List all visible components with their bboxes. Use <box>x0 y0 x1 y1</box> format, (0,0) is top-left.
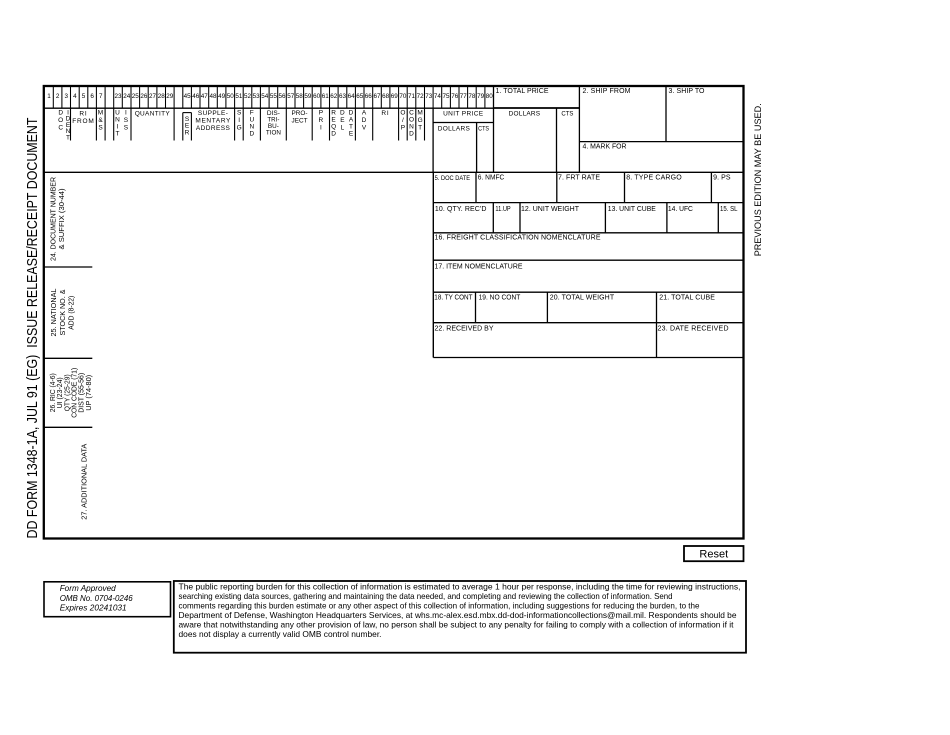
svg-text:T: T <box>418 125 422 132</box>
svg-text:2. SHIP FROM: 2. SHIP FROM <box>583 88 631 95</box>
svg-text:21. TOTAL CUBE: 21. TOTAL CUBE <box>659 294 715 301</box>
svg-text:I: I <box>238 117 240 124</box>
svg-text:61: 61 <box>322 93 330 100</box>
svg-text:CTS: CTS <box>561 111 574 118</box>
svg-text:71: 71 <box>408 93 416 100</box>
svg-text:53: 53 <box>253 93 261 100</box>
svg-text:The public reporting burden fo: The public reporting burden for this col… <box>179 582 741 591</box>
svg-text:2: 2 <box>56 93 60 100</box>
svg-text:25. NATIONAL: 25. NATIONAL <box>49 289 58 337</box>
svg-text:T: T <box>349 124 353 131</box>
svg-text:P: P <box>401 125 405 132</box>
svg-text:16. FREIGHT CLASSIFICATION NOM: 16. FREIGHT CLASSIFICATION NOMENCLATURE <box>435 235 601 242</box>
svg-text:49: 49 <box>218 93 226 100</box>
svg-text:12. UNIT WEIGHT: 12. UNIT WEIGHT <box>521 206 580 213</box>
svg-text:5. DOC DATE: 5. DOC DATE <box>435 175 471 182</box>
svg-text:G: G <box>418 117 423 124</box>
svg-text:DD FORM 1348-1A, JUL 91 (EG): DD FORM 1348-1A, JUL 91 (EG) ISSUE RELEA… <box>24 118 41 539</box>
svg-text:58: 58 <box>296 93 304 100</box>
svg-text:23: 23 <box>114 93 122 100</box>
svg-text:S: S <box>98 125 103 132</box>
svg-text:70: 70 <box>399 93 407 100</box>
svg-text:55: 55 <box>270 93 278 100</box>
svg-text:I: I <box>125 110 127 117</box>
svg-text:E: E <box>340 117 345 124</box>
svg-text:23. DATE RECEIVED: 23. DATE RECEIVED <box>658 325 729 332</box>
svg-text:CTS: CTS <box>478 125 490 132</box>
svg-text:searching existing data source: searching existing data sources, gatheri… <box>179 592 673 601</box>
svg-text:26. RIC (4-6): 26. RIC (4-6) <box>50 373 57 412</box>
svg-text:P: P <box>319 110 323 117</box>
svg-text:11.UP: 11.UP <box>495 206 511 213</box>
svg-text:50: 50 <box>227 93 235 100</box>
svg-text:9. PS: 9. PS <box>713 174 731 181</box>
svg-text:4: 4 <box>73 93 77 100</box>
svg-text:G: G <box>237 125 242 132</box>
svg-text:E: E <box>331 117 336 124</box>
svg-text:48: 48 <box>209 93 217 100</box>
svg-text:22. RECEIVED BY: 22. RECEIVED BY <box>435 325 494 332</box>
svg-text:UI (23-24): UI (23-24) <box>57 377 64 408</box>
svg-text:O: O <box>400 110 405 117</box>
svg-text:PRO-: PRO- <box>292 110 308 117</box>
svg-text:Department of Defense, Washing: Department of Defense, Washington Headqu… <box>179 611 738 620</box>
svg-text:FROM: FROM <box>72 118 94 125</box>
svg-text:47: 47 <box>201 93 209 100</box>
svg-text:78: 78 <box>468 93 476 100</box>
svg-text:& SUFFIX (30-44): & SUFFIX (30-44) <box>57 188 66 250</box>
svg-text:MENTARY: MENTARY <box>195 117 231 124</box>
svg-text:Form Approved: Form Approved <box>60 583 116 593</box>
svg-text:18. TY CONT: 18. TY CONT <box>434 294 473 301</box>
svg-text:ADD (8-22): ADD (8-22) <box>66 295 75 329</box>
svg-text:74: 74 <box>434 93 442 100</box>
svg-text:65: 65 <box>356 93 364 100</box>
svg-text:N: N <box>409 124 414 131</box>
svg-text:64: 64 <box>348 93 356 100</box>
svg-text:15. SL: 15. SL <box>720 206 738 213</box>
svg-text:3. SHIP TO: 3. SHIP TO <box>669 88 706 95</box>
svg-text:46: 46 <box>192 93 200 100</box>
svg-text:does not display a currently v: does not display a currently valid OMB c… <box>179 630 382 639</box>
svg-text:A: A <box>362 110 367 117</box>
svg-text:RI: RI <box>381 110 389 117</box>
svg-text:L: L <box>341 125 345 132</box>
svg-text:QUANTITY: QUANTITY <box>135 111 171 118</box>
svg-text:TION: TION <box>266 129 281 136</box>
svg-text:28: 28 <box>158 93 166 100</box>
svg-text:R: R <box>319 117 324 124</box>
svg-text:ADDRESS: ADDRESS <box>196 125 231 132</box>
svg-text:U: U <box>115 110 120 117</box>
svg-text:45: 45 <box>184 93 192 100</box>
svg-text:M: M <box>98 110 103 117</box>
svg-text:C: C <box>58 125 63 132</box>
svg-text:T: T <box>66 134 70 141</box>
svg-text:Reset: Reset <box>699 548 728 560</box>
svg-text:29: 29 <box>166 93 174 100</box>
svg-text:QTY (25-29): QTY (25-29) <box>64 374 71 411</box>
svg-text:R: R <box>185 129 190 136</box>
svg-text:PREVIOUS EDITION MAY BE USED.: PREVIOUS EDITION MAY BE USED. <box>753 103 763 256</box>
svg-text:D: D <box>349 110 354 117</box>
svg-text:77: 77 <box>460 93 468 100</box>
svg-text:4. MARK FOR: 4. MARK FOR <box>583 144 627 151</box>
svg-text:aware that notwithstanding any: aware that notwithstanding any other pro… <box>179 621 735 630</box>
svg-text:Q: Q <box>331 124 336 131</box>
svg-text:7. FRT RATE: 7. FRT RATE <box>558 174 600 181</box>
svg-text:13. UNIT CUBE: 13. UNIT CUBE <box>608 206 656 213</box>
svg-text:DIST (55-56): DIST (55-56) <box>79 373 86 413</box>
svg-text:DOLLARS: DOLLARS <box>438 125 471 132</box>
svg-text:/: / <box>402 117 404 124</box>
svg-text:26: 26 <box>140 93 148 100</box>
svg-text:72: 72 <box>417 93 425 100</box>
svg-text:3: 3 <box>64 93 68 100</box>
svg-text:D: D <box>249 131 254 138</box>
svg-text:S: S <box>124 117 129 124</box>
svg-text:N: N <box>115 117 120 124</box>
svg-text:A: A <box>349 117 354 124</box>
svg-text:UNIT PRICE: UNIT PRICE <box>443 111 484 118</box>
svg-text:20. TOTAL WEIGHT: 20. TOTAL WEIGHT <box>550 294 615 301</box>
svg-text:D: D <box>340 110 345 117</box>
svg-text:&: & <box>98 117 103 124</box>
svg-text:6: 6 <box>90 93 94 100</box>
svg-text:7: 7 <box>99 93 103 100</box>
svg-text:10. QTY. REC'D: 10. QTY. REC'D <box>435 206 487 213</box>
svg-text:68: 68 <box>382 93 390 100</box>
svg-text:27: 27 <box>149 93 157 100</box>
svg-text:27. ADDITIONAL DATA: 27. ADDITIONAL DATA <box>79 444 88 520</box>
svg-text:51: 51 <box>235 93 243 100</box>
svg-text:59: 59 <box>304 93 312 100</box>
svg-text:67: 67 <box>373 93 381 100</box>
svg-text:73: 73 <box>425 93 433 100</box>
svg-text:UP (74-80): UP (74-80) <box>86 375 93 411</box>
svg-text:1. TOTAL PRICE: 1. TOTAL PRICE <box>496 88 549 95</box>
svg-text:O: O <box>409 117 414 124</box>
svg-text:63: 63 <box>339 93 347 100</box>
svg-text:60: 60 <box>313 93 321 100</box>
svg-text:D: D <box>409 131 414 138</box>
svg-text:25: 25 <box>132 93 140 100</box>
svg-text:D: D <box>362 117 367 124</box>
svg-text:CON CODE (71): CON CODE (71) <box>72 368 79 418</box>
svg-text:5: 5 <box>82 93 86 100</box>
svg-text:RI: RI <box>79 111 87 118</box>
svg-text:76: 76 <box>451 93 459 100</box>
svg-text:SUPPLE-: SUPPLE- <box>198 110 228 117</box>
svg-text:U: U <box>249 117 254 124</box>
svg-text:F: F <box>250 110 254 117</box>
svg-text:O: O <box>58 117 63 124</box>
svg-text:6. NMFC: 6. NMFC <box>478 174 505 181</box>
svg-text:D: D <box>331 131 336 138</box>
svg-text:69: 69 <box>391 93 399 100</box>
svg-text:D: D <box>58 110 63 117</box>
svg-text:I: I <box>117 124 119 131</box>
svg-text:C: C <box>409 110 414 117</box>
svg-text:N: N <box>249 124 254 131</box>
svg-text:75: 75 <box>442 93 450 100</box>
svg-text:M: M <box>417 110 422 117</box>
svg-text:Expires 20241031: Expires 20241031 <box>60 603 127 613</box>
svg-text:T: T <box>116 131 120 138</box>
svg-text:57: 57 <box>287 93 295 100</box>
svg-text:V: V <box>362 125 367 132</box>
svg-text:8. TYPE CARGO: 8. TYPE CARGO <box>626 174 682 181</box>
svg-text:56: 56 <box>278 93 286 100</box>
svg-text:17. ITEM NOMENCLATURE: 17. ITEM NOMENCLATURE <box>435 263 523 270</box>
svg-text:JECT: JECT <box>292 118 308 125</box>
svg-text:52: 52 <box>244 93 252 100</box>
svg-text:E: E <box>349 131 354 138</box>
svg-text:S: S <box>237 110 242 117</box>
svg-text:S: S <box>124 125 129 132</box>
svg-text:R: R <box>331 110 336 117</box>
svg-text:DOLLARS: DOLLARS <box>509 111 541 118</box>
svg-text:66: 66 <box>365 93 373 100</box>
svg-text:1: 1 <box>47 93 51 100</box>
svg-text:comments regarding this burden: comments regarding this burden estimate … <box>179 602 700 611</box>
svg-text:14. UFC: 14. UFC <box>668 206 693 213</box>
svg-text:62: 62 <box>330 93 338 100</box>
svg-text:19. NO CONT: 19. NO CONT <box>479 294 521 301</box>
svg-text:79: 79 <box>477 93 485 100</box>
svg-text:80: 80 <box>486 93 494 100</box>
svg-text:54: 54 <box>261 93 269 100</box>
svg-text:OMB No. 0704-0246: OMB No. 0704-0246 <box>60 593 133 603</box>
svg-text:I: I <box>320 125 322 132</box>
svg-text:24: 24 <box>123 93 131 100</box>
